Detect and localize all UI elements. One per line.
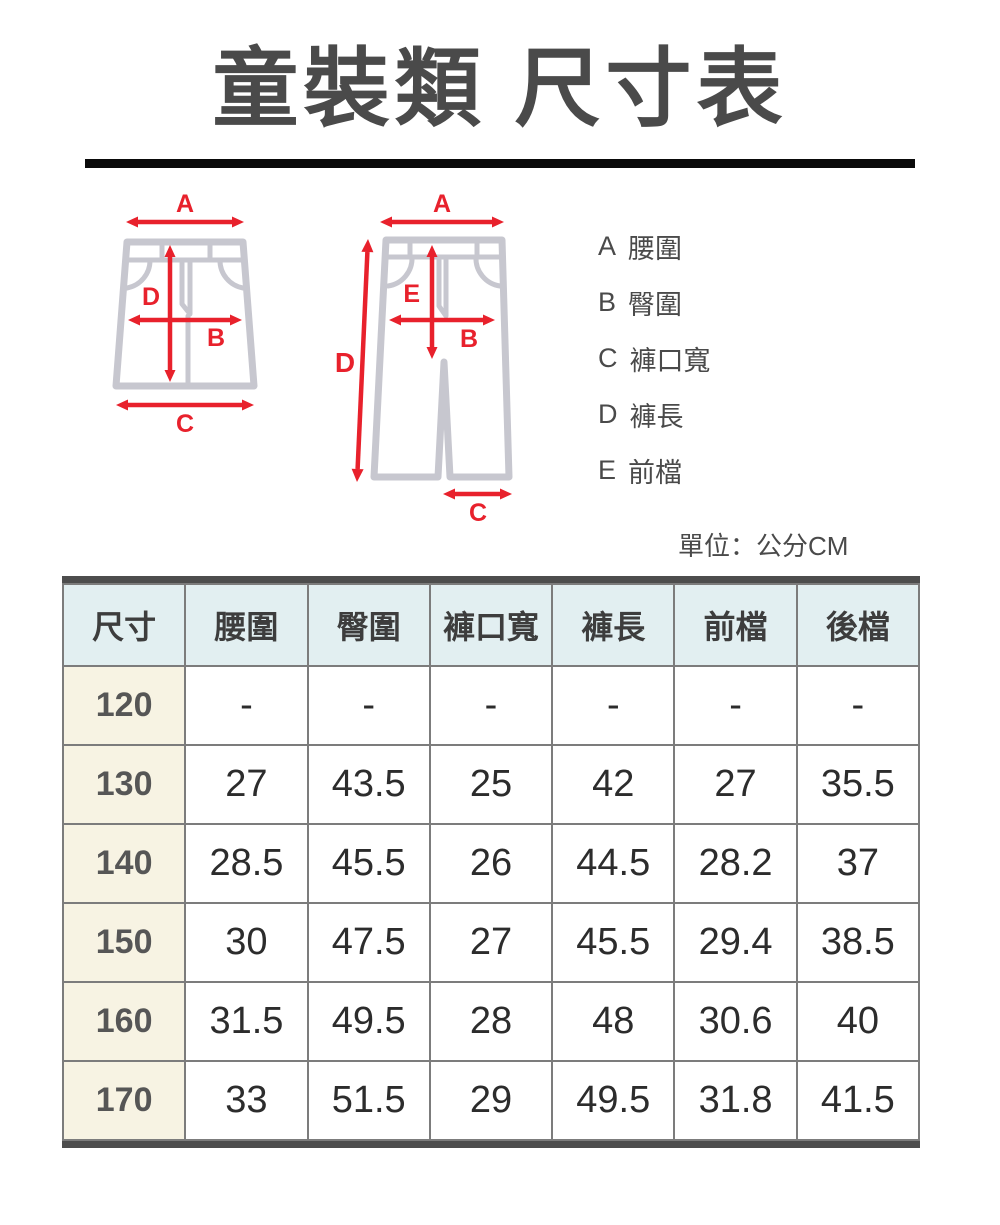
legend-label: 前檔 bbox=[628, 451, 682, 490]
legend-letter: A bbox=[598, 231, 616, 262]
measurement-legend: A 腰圍 B 臀圍 C 褲口寬 D 褲長 E 前檔 bbox=[598, 218, 711, 498]
arrowhead bbox=[128, 315, 140, 326]
value-cell: 28.2 bbox=[674, 824, 796, 903]
value-cell: 41.5 bbox=[797, 1061, 919, 1140]
pants-pocket-right bbox=[476, 257, 500, 286]
legend-item-hip: B 臀圍 bbox=[598, 274, 711, 330]
value-cell: 31.5 bbox=[185, 982, 307, 1061]
arrowhead bbox=[361, 239, 373, 252]
size-cell: 140 bbox=[63, 824, 185, 903]
value-cell: 49.5 bbox=[552, 1061, 674, 1140]
legend-letter: C bbox=[598, 343, 618, 374]
column-header: 腰圍 bbox=[185, 584, 307, 666]
pants-label-D: D bbox=[335, 347, 355, 378]
value-cell: 28.5 bbox=[185, 824, 307, 903]
value-cell: 27 bbox=[674, 745, 796, 824]
value-cell: 38.5 bbox=[797, 903, 919, 982]
shorts-label-A: A bbox=[176, 192, 194, 218]
legend-item-leg-opening: C 褲口寬 bbox=[598, 330, 711, 386]
size-cell: 120 bbox=[63, 666, 185, 745]
column-header: 臀圍 bbox=[308, 584, 430, 666]
value-cell: 27 bbox=[430, 903, 552, 982]
legend-item-waist: A 腰圍 bbox=[598, 218, 711, 274]
arrowhead bbox=[116, 400, 128, 411]
shorts-label-C: C bbox=[176, 410, 194, 438]
legend-label: 腰圍 bbox=[628, 227, 682, 266]
value-cell: 48 bbox=[552, 982, 674, 1061]
title-divider bbox=[85, 159, 915, 168]
arrowhead bbox=[389, 315, 401, 326]
arrowhead bbox=[126, 217, 138, 228]
value-cell: 42 bbox=[552, 745, 674, 824]
column-header: 尺寸 bbox=[63, 584, 185, 666]
value-cell: 47.5 bbox=[308, 903, 430, 982]
arrowhead bbox=[427, 245, 438, 257]
column-header: 後檔 bbox=[797, 584, 919, 666]
value-cell: 26 bbox=[430, 824, 552, 903]
size-cell: 160 bbox=[63, 982, 185, 1061]
shorts-label-D: D bbox=[142, 283, 160, 311]
table-row: 120------ bbox=[63, 666, 919, 745]
shorts-fly bbox=[182, 260, 190, 314]
size-cell: 130 bbox=[63, 745, 185, 824]
value-cell: - bbox=[430, 666, 552, 745]
arrowhead bbox=[443, 489, 455, 500]
arrowhead bbox=[230, 315, 242, 326]
size-table-body: 120------1302743.525422735.514028.545.52… bbox=[63, 666, 919, 1140]
value-cell: - bbox=[674, 666, 796, 745]
table-row: 1703351.52949.531.841.5 bbox=[63, 1061, 919, 1140]
arrowhead bbox=[352, 469, 364, 482]
value-cell: 33 bbox=[185, 1061, 307, 1140]
value-cell: 37 bbox=[797, 824, 919, 903]
value-cell: - bbox=[185, 666, 307, 745]
value-cell: 30 bbox=[185, 903, 307, 982]
shorts-outline bbox=[116, 242, 254, 386]
value-cell: 30.6 bbox=[674, 982, 796, 1061]
table-row: 1503047.52745.529.438.5 bbox=[63, 903, 919, 982]
pants-fly bbox=[439, 257, 446, 316]
value-cell: 43.5 bbox=[308, 745, 430, 824]
table-row: 1302743.525422735.5 bbox=[63, 745, 919, 824]
arrowhead bbox=[427, 347, 438, 359]
pants-label-E: E bbox=[403, 280, 420, 308]
legend-letter: E bbox=[598, 455, 616, 486]
legend-item-length: D 褲長 bbox=[598, 386, 711, 442]
value-cell: 51.5 bbox=[308, 1061, 430, 1140]
unit-note: 單位：公分CM bbox=[678, 526, 848, 563]
arrowhead bbox=[492, 217, 504, 228]
arrowhead bbox=[242, 400, 254, 411]
column-header: 褲口寬 bbox=[430, 584, 552, 666]
legend-label: 褲口寬 bbox=[630, 339, 711, 378]
size-chart-page: 童裝類 尺寸表 A D B C bbox=[0, 0, 1000, 1225]
legend-letter: B bbox=[598, 287, 616, 318]
shorts-pocket-right bbox=[220, 260, 243, 288]
value-cell: 35.5 bbox=[797, 745, 919, 824]
page-title: 童裝類 尺寸表 bbox=[0, 42, 1000, 137]
arrowhead bbox=[380, 217, 392, 228]
arrowhead bbox=[165, 370, 176, 382]
value-cell: 45.5 bbox=[552, 903, 674, 982]
pants-label-B: B bbox=[460, 325, 478, 353]
value-cell: - bbox=[552, 666, 674, 745]
column-header: 前檔 bbox=[674, 584, 796, 666]
legend-item-front-rise: E 前檔 bbox=[598, 442, 711, 498]
value-cell: 45.5 bbox=[308, 824, 430, 903]
size-table-head-row: 尺寸腰圍臀圍褲口寬褲長前檔後檔 bbox=[63, 584, 919, 666]
column-header: 褲長 bbox=[552, 584, 674, 666]
size-table: 尺寸腰圍臀圍褲口寬褲長前檔後檔 120------1302743.5254227… bbox=[62, 583, 920, 1141]
pants-label-A: A bbox=[433, 192, 451, 218]
pants-diagram-icon: A D E B C bbox=[332, 192, 522, 532]
value-cell: - bbox=[308, 666, 430, 745]
pants-arrow-D bbox=[358, 252, 368, 469]
value-cell: 29.4 bbox=[674, 903, 796, 982]
value-cell: 29 bbox=[430, 1061, 552, 1140]
value-cell: 31.8 bbox=[674, 1061, 796, 1140]
value-cell: 28 bbox=[430, 982, 552, 1061]
value-cell: 25 bbox=[430, 745, 552, 824]
table-row: 16031.549.5284830.640 bbox=[63, 982, 919, 1061]
arrowhead bbox=[232, 217, 244, 228]
table-row: 14028.545.52644.528.237 bbox=[63, 824, 919, 903]
arrowhead bbox=[165, 245, 176, 257]
shorts-label-B: B bbox=[207, 324, 225, 352]
pants-label-C: C bbox=[469, 499, 487, 527]
legend-letter: D bbox=[598, 399, 618, 430]
legend-label: 臀圍 bbox=[628, 283, 682, 322]
size-cell: 170 bbox=[63, 1061, 185, 1140]
shorts-diagram-icon: A D B C bbox=[104, 192, 269, 442]
legend-label: 褲長 bbox=[630, 395, 684, 434]
value-cell: 40 bbox=[797, 982, 919, 1061]
value-cell: 44.5 bbox=[552, 824, 674, 903]
arrowhead bbox=[500, 489, 512, 500]
arrowhead bbox=[483, 315, 495, 326]
size-table-wrapper: 尺寸腰圍臀圍褲口寬褲長前檔後檔 120------1302743.5254227… bbox=[62, 576, 920, 1148]
value-cell: 27 bbox=[185, 745, 307, 824]
value-cell: 49.5 bbox=[308, 982, 430, 1061]
size-table-head: 尺寸腰圍臀圍褲口寬褲長前檔後檔 bbox=[63, 584, 919, 666]
size-cell: 150 bbox=[63, 903, 185, 982]
value-cell: - bbox=[797, 666, 919, 745]
